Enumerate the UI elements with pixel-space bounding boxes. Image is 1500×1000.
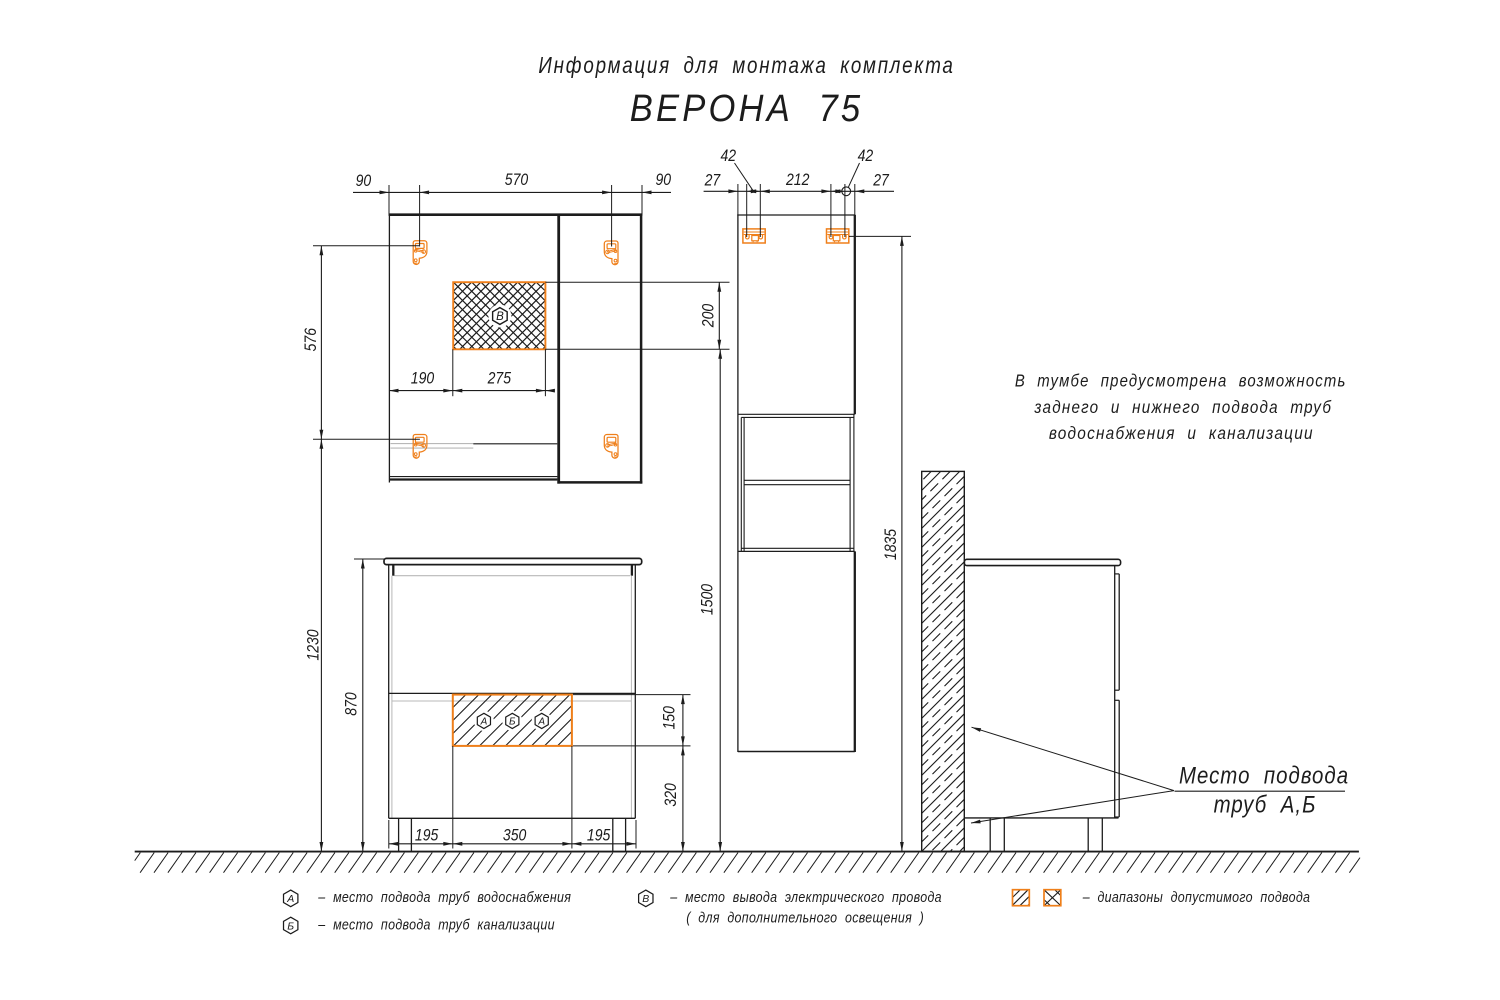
svg-text:570: 570 (505, 171, 529, 189)
svg-text:27: 27 (704, 171, 721, 189)
svg-text:– диапазоны допустимого подво: – диапазоны допустимого подвода (1082, 889, 1310, 905)
svg-text:труб А,Б: труб А,Б (1214, 791, 1317, 818)
svg-text:150: 150 (660, 706, 678, 730)
svg-text:870: 870 (342, 692, 360, 716)
svg-text:275: 275 (487, 369, 512, 387)
svg-text:1230: 1230 (304, 629, 322, 661)
svg-text:Информация для монтажа комплек: Информация для монтажа комплекта (538, 52, 954, 79)
svg-text:– место подвода труб канализа: – место подвода труб канализации (317, 916, 554, 932)
svg-text:1835: 1835 (882, 528, 900, 560)
svg-text:ВЕРОНА 75: ВЕРОНА 75 (630, 86, 864, 129)
svg-text:90: 90 (356, 172, 372, 190)
svg-text:Б: Б (509, 717, 516, 728)
svg-text:( для дополнительного освещени: ( для дополнительного освещения ) (686, 909, 924, 925)
svg-text:Место подвода: Место подвода (1179, 762, 1349, 789)
svg-text:90: 90 (656, 171, 672, 189)
svg-text:Б: Б (287, 920, 294, 932)
svg-text:– место вывода электрического: – место вывода электрического провода (669, 889, 942, 905)
svg-text:190: 190 (411, 369, 435, 387)
svg-text:А: А (480, 717, 488, 728)
svg-text:27: 27 (872, 171, 889, 189)
svg-text:водоснабжения и канализации: водоснабжения и канализации (1049, 424, 1314, 443)
svg-text:195: 195 (415, 826, 439, 844)
svg-text:320: 320 (662, 783, 680, 807)
svg-text:576: 576 (302, 328, 320, 352)
svg-text:В: В (642, 893, 649, 905)
svg-text:42: 42 (858, 147, 874, 165)
svg-text:А: А (537, 717, 545, 728)
svg-text:1500: 1500 (698, 583, 716, 615)
svg-text:– место подвода труб водоснаб: – место подвода труб водоснабжения (317, 889, 571, 905)
svg-text:В: В (496, 311, 504, 323)
svg-text:195: 195 (587, 826, 611, 844)
svg-text:200: 200 (699, 303, 717, 328)
svg-text:42: 42 (721, 147, 737, 165)
svg-text:заднего и нижнего подвода труб: заднего и нижнего подвода труб (1033, 398, 1332, 417)
svg-text:В тумбе предусмотрена возможно: В тумбе предусмотрена возможность (1015, 371, 1347, 390)
svg-text:212: 212 (785, 171, 810, 189)
svg-text:350: 350 (503, 826, 527, 844)
svg-text:А: А (286, 893, 294, 905)
